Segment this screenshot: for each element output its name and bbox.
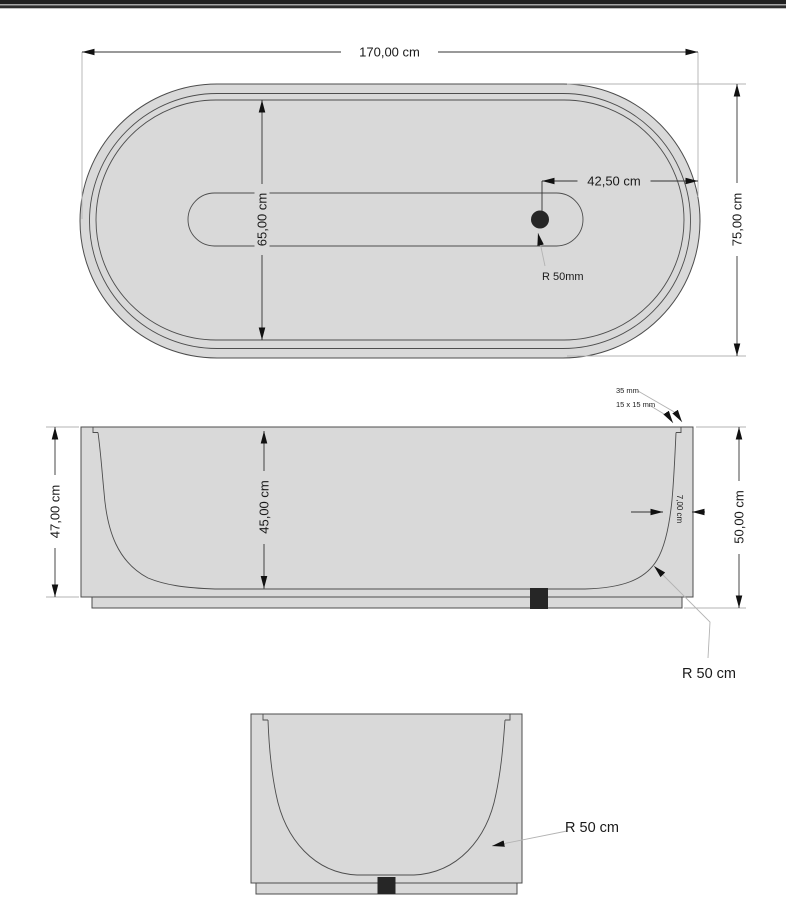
technical-drawing-page: 170,00 cm 75,00 cm 65,00 cm 42,50 cm R 5… [0, 0, 786, 907]
side-radius-label: R 50 cm [682, 666, 736, 682]
dim-body-height: 47,00 cm [46, 427, 79, 597]
dim-overall-height-label: 50,00 cm [732, 490, 747, 543]
top-bar [0, 0, 786, 8]
drain-block-end [378, 877, 396, 894]
dim-inner-depth-label: 45,00 cm [257, 480, 272, 533]
dim-length-label: 170,00 cm [359, 45, 420, 60]
drain-block-side [530, 588, 548, 609]
side-view: 47,00 cm 45,00 cm 50,00 cm 7,00 cm 35 mm [46, 386, 747, 682]
drain-radius-label: R 50mm [542, 271, 584, 283]
tub-outer-outline-top [80, 84, 700, 358]
end-radius-label: R 50 cm [565, 820, 619, 836]
tub-body-side [81, 427, 693, 597]
plinth-side [92, 597, 682, 608]
drain-hole [531, 211, 549, 229]
dim-body-height-label: 47,00 cm [48, 485, 63, 538]
bathtub-drawing-canvas: 170,00 cm 75,00 cm 65,00 cm 42,50 cm R 5… [0, 0, 786, 907]
top-view: 170,00 cm 75,00 cm 65,00 cm 42,50 cm R 5… [80, 45, 746, 359]
dim-basin-width-label: 65,00 cm [255, 193, 270, 246]
dim-overall-width-label: 75,00 cm [730, 193, 745, 246]
dim-drain-offset-label: 42,50 cm [587, 174, 640, 189]
end-view: R 50 cm [251, 714, 619, 894]
rim-notch-label: 15 x 15 mm [616, 400, 655, 409]
rim-callouts: 35 mm 15 x 15 mm [616, 386, 682, 423]
dim-wall-thickness-label: 7,00 cm [675, 495, 684, 524]
top-bar-lower-line [0, 6, 786, 9]
rim-width-label: 35 mm [616, 386, 639, 395]
top-bar-accent-line [0, 4, 786, 5]
tub-body-end [251, 714, 522, 883]
top-bar-dark [0, 0, 786, 4]
